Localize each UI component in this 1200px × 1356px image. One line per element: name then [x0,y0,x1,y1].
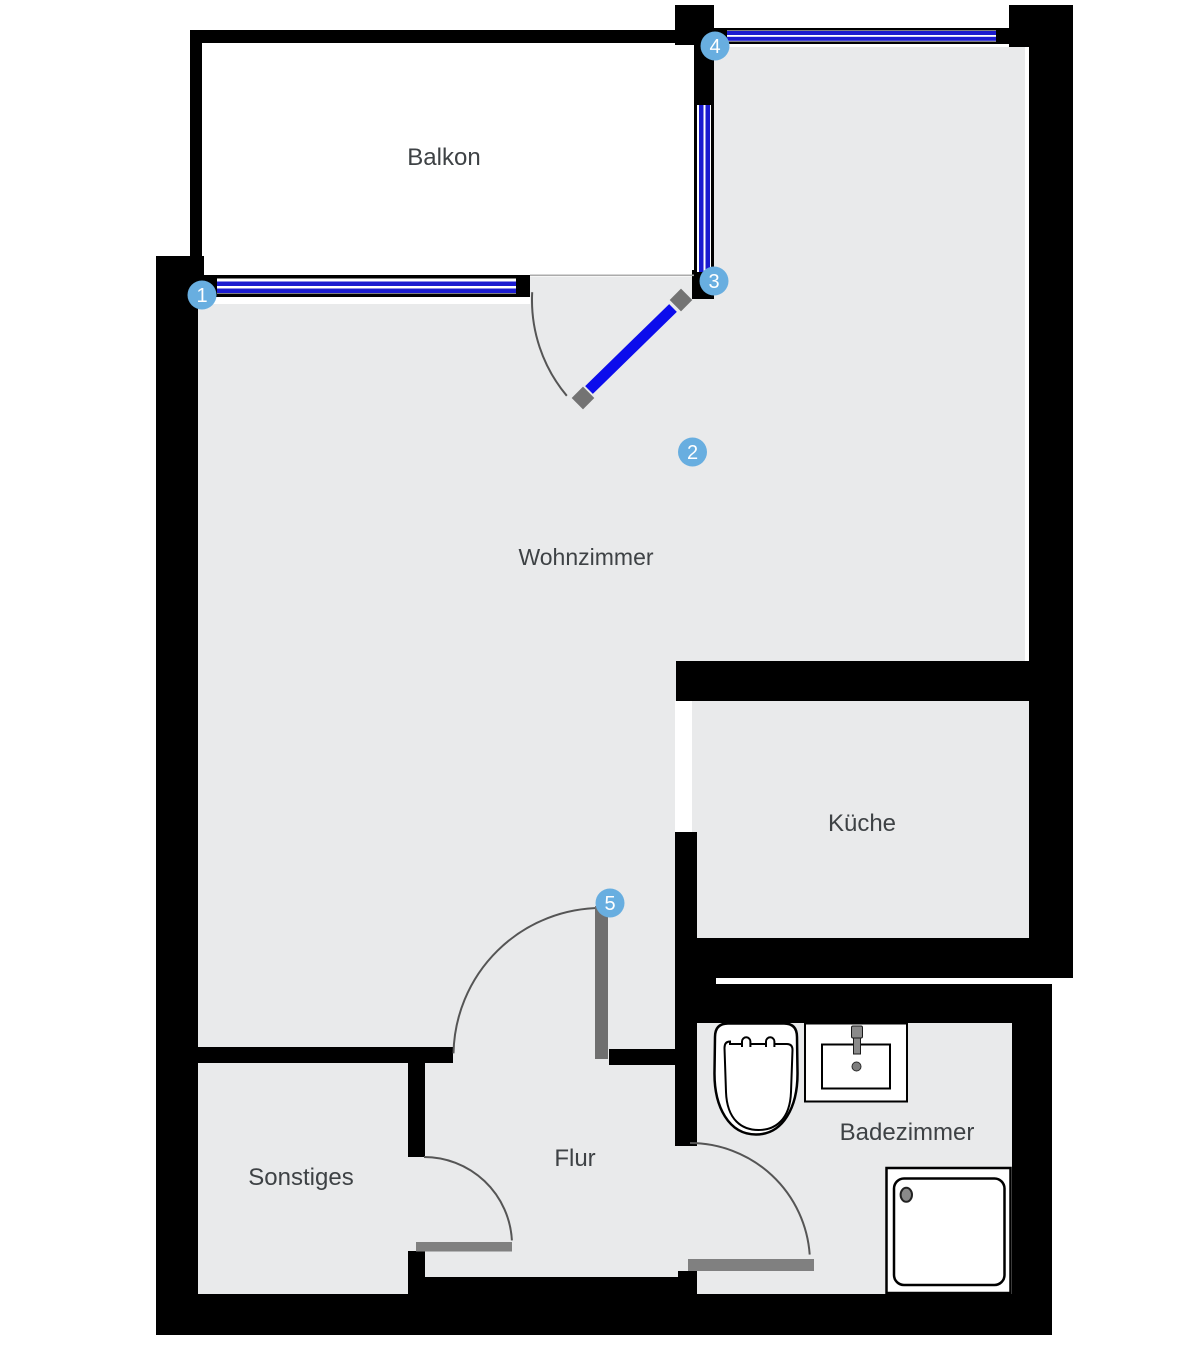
svg-text:Küche: Küche [828,810,896,837]
svg-text:Balkon: Balkon [407,144,480,171]
svg-text:4: 4 [709,36,720,58]
svg-text:1: 1 [196,285,207,307]
svg-text:Sonstiges: Sonstiges [248,1164,353,1191]
svg-text:5: 5 [604,893,615,915]
svg-text:2: 2 [687,442,698,464]
svg-text:Wohnzimmer: Wohnzimmer [518,544,653,570]
svg-text:Badezimmer: Badezimmer [840,1119,975,1146]
svg-text:Flur: Flur [554,1145,595,1172]
svg-text:3: 3 [708,271,719,293]
